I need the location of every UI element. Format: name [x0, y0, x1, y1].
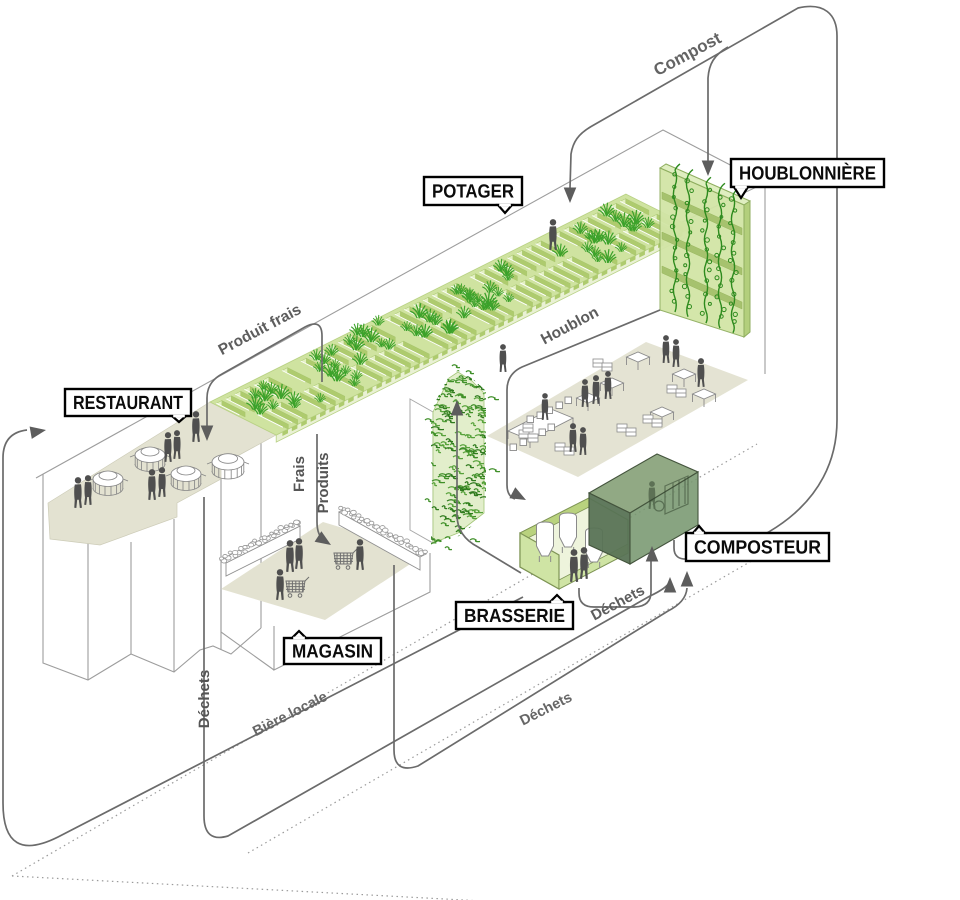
svg-text:Produits: Produits [315, 453, 332, 514]
svg-text:MAGASIN: MAGASIN [292, 642, 373, 663]
svg-text:Déchets: Déchets [196, 670, 213, 728]
svg-text:RESTAURANT: RESTAURANT [73, 393, 183, 414]
svg-text:POTAGER: POTAGER [432, 182, 514, 203]
svg-text:HOUBLONNIÈRE: HOUBLONNIÈRE [739, 163, 876, 185]
svg-text:Frais: Frais [291, 456, 308, 492]
svg-text:COMPOSTEUR: COMPOSTEUR [694, 538, 821, 559]
svg-text:BRASSERIE: BRASSERIE [464, 606, 565, 627]
